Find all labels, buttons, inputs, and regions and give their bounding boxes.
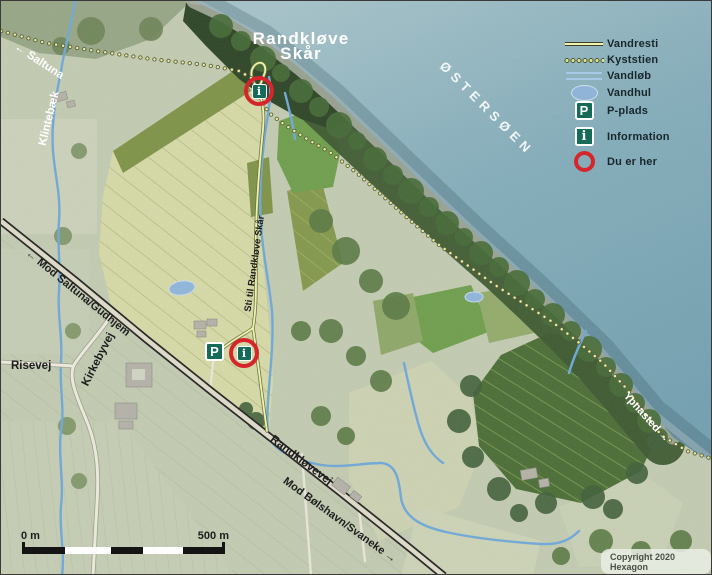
you-are-here-marker-north: i bbox=[244, 76, 274, 106]
scale-end-label: 500 m bbox=[198, 530, 229, 542]
information-icon: i bbox=[237, 346, 252, 361]
you-are-here-icon bbox=[574, 151, 595, 172]
scale-tick-right bbox=[222, 542, 225, 554]
legend-item-du-er-her: Du er her bbox=[561, 149, 711, 174]
trail-map: Randkløve Skår ØSTERSØEN ← Saltuna Klint… bbox=[0, 0, 712, 575]
label-risevej: Risevej bbox=[11, 361, 51, 373]
scale-start-label: 0 m bbox=[21, 530, 40, 542]
information-icon: i bbox=[575, 127, 594, 146]
scale-bar-strip bbox=[23, 547, 223, 554]
copyright-badge: Copyright 2020 Hexagon bbox=[601, 549, 711, 574]
legend: Vandresti Kyststien Vandløb Vandhul P P-… bbox=[561, 34, 711, 174]
dotted-trail-icon bbox=[564, 58, 604, 63]
you-are-here-marker-parking: i bbox=[229, 338, 259, 368]
parking-icon: P bbox=[575, 101, 594, 120]
trail-line-icon bbox=[565, 42, 603, 46]
stream-lines-icon bbox=[566, 72, 602, 80]
legend-item-information: i Information bbox=[561, 124, 711, 149]
scale-bar: 0 m 500 m bbox=[21, 530, 229, 562]
parking-icon: P bbox=[205, 342, 224, 361]
information-icon: i bbox=[252, 84, 267, 99]
legend-item-p-plads: P P-plads bbox=[561, 98, 711, 123]
map-title: Randkløve Skår bbox=[229, 31, 373, 61]
map-title-line2: Skår bbox=[229, 46, 373, 61]
